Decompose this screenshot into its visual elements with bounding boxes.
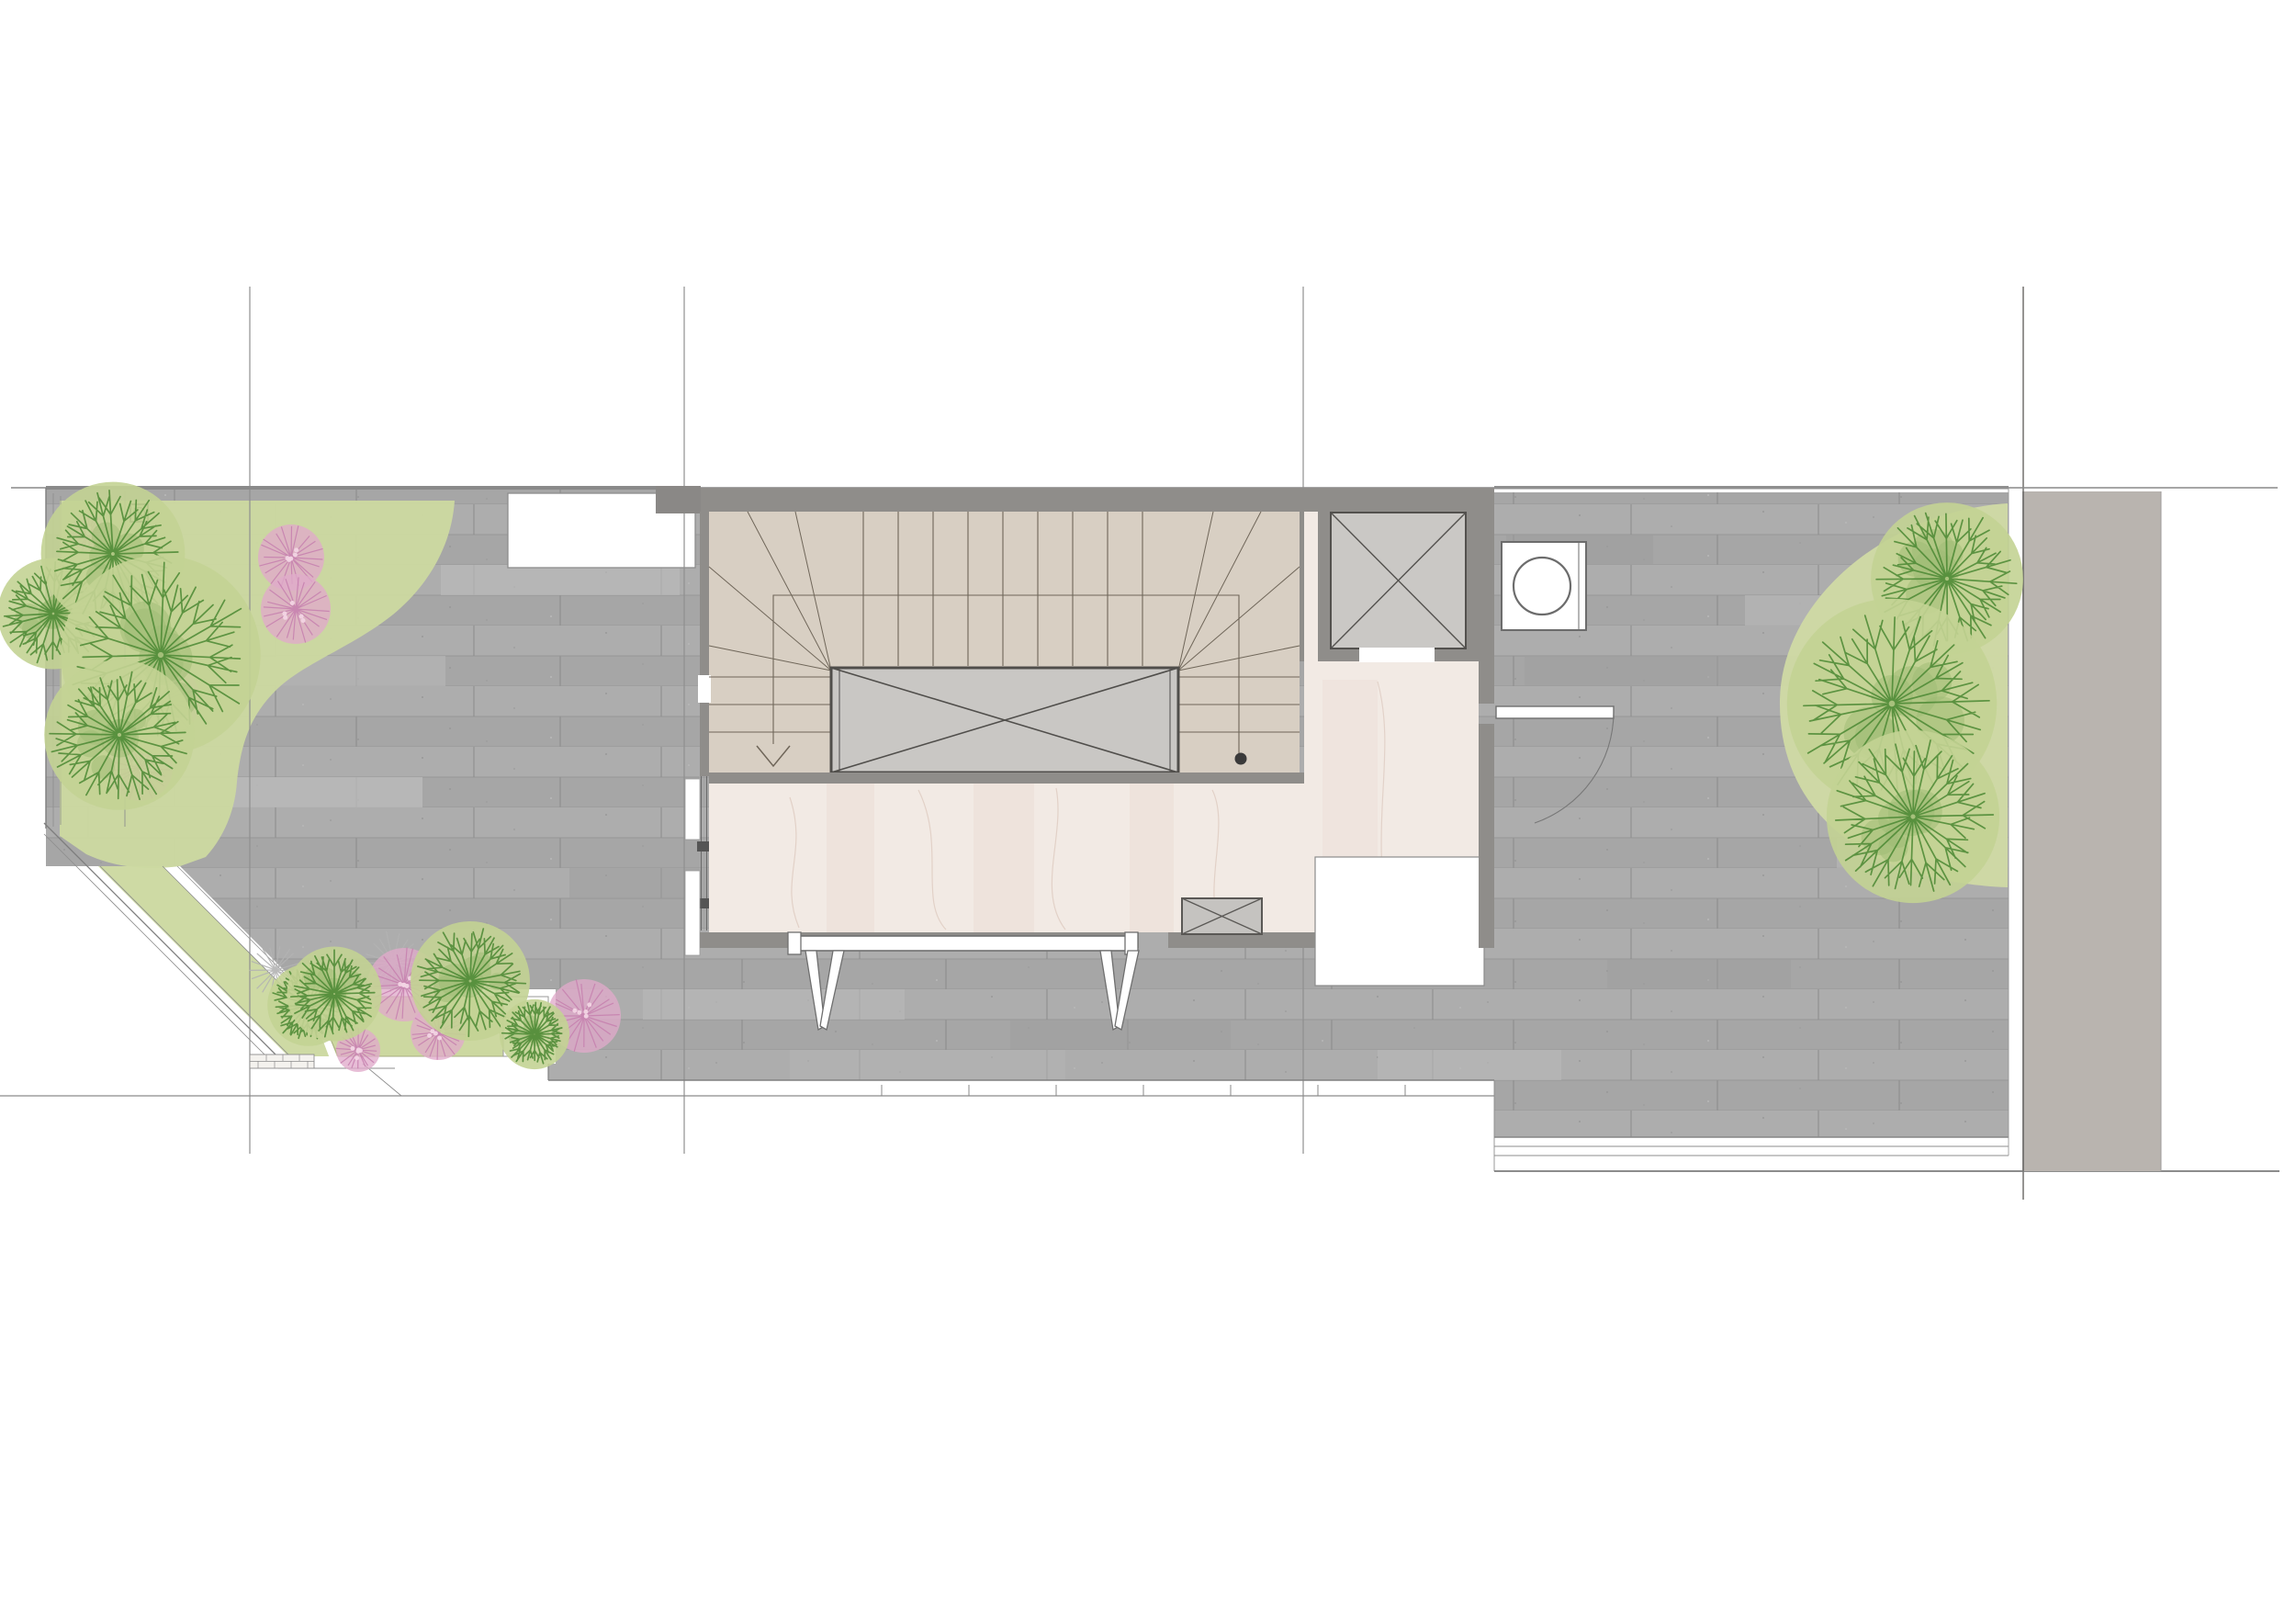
elevator-door <box>1359 648 1435 662</box>
stair-east-wall <box>1300 512 1304 661</box>
door-leaf <box>1496 706 1614 718</box>
pink-bush-dot <box>577 1010 581 1015</box>
roof-terrace-plan <box>0 0 2296 1624</box>
pink-bush-dot <box>293 553 298 558</box>
pink-bush-dot <box>350 1046 355 1051</box>
pink-bush-dot <box>587 1002 591 1007</box>
wall-pier <box>656 486 701 513</box>
plank <box>441 565 680 595</box>
threshold-2 <box>685 871 700 955</box>
pink-bush-dot <box>299 615 304 619</box>
pink-bush-dot <box>294 547 298 552</box>
pink-bush-dot <box>437 1035 442 1040</box>
pink-bush-dot <box>427 1033 432 1038</box>
stair-room-divider-wall <box>709 773 1304 784</box>
threshold-1 <box>685 779 700 840</box>
plank <box>230 777 422 807</box>
tree <box>44 660 195 810</box>
left-wall-opening <box>698 675 711 703</box>
building-left-wall <box>700 512 709 776</box>
stair-walkline-dot <box>1235 753 1247 765</box>
bush-tree <box>287 946 381 1041</box>
marble-band <box>1130 784 1174 932</box>
pink-bush-dot <box>301 618 306 623</box>
pink-bush-dot <box>283 615 287 620</box>
pink-bush-dot <box>583 1009 588 1014</box>
pink-bush-dot <box>398 982 402 987</box>
building-right-wall-upper <box>1479 488 1494 704</box>
pink-bush-dot <box>355 1055 359 1060</box>
marble-band <box>974 784 1034 932</box>
bush-tree <box>500 999 569 1069</box>
landing-white-panel <box>1315 857 1484 986</box>
building <box>656 486 1614 986</box>
bench-top <box>790 936 1136 951</box>
pink-bush-dot <box>433 1031 438 1035</box>
plank <box>1607 959 1791 989</box>
pink-bush-dot <box>355 1049 360 1054</box>
building-right-wall-lower <box>1479 724 1494 948</box>
marble-corridor <box>1304 512 1318 661</box>
plank <box>1378 1050 1561 1080</box>
glazing-mullion-1 <box>697 841 710 851</box>
neighbour-strip <box>2023 491 2161 1171</box>
tree <box>1827 730 1999 903</box>
pink-bush <box>261 574 331 644</box>
pink-bush-dot <box>572 1009 577 1013</box>
pink-bush-dot <box>282 612 287 616</box>
pink-bush-dot <box>285 556 289 560</box>
plank <box>643 989 905 1020</box>
bench-end-left <box>788 932 801 954</box>
condenser-fan <box>1514 558 1570 615</box>
marble-band <box>827 784 874 932</box>
pink-bush-dot <box>584 1014 589 1019</box>
plan-drawing <box>0 0 2296 1624</box>
neighbour-roof-strip <box>2023 491 2161 1171</box>
pink-bush-dot <box>290 601 295 605</box>
plank <box>790 1050 1065 1080</box>
parapet-top-right <box>1494 486 2009 490</box>
plank <box>1525 656 1800 686</box>
